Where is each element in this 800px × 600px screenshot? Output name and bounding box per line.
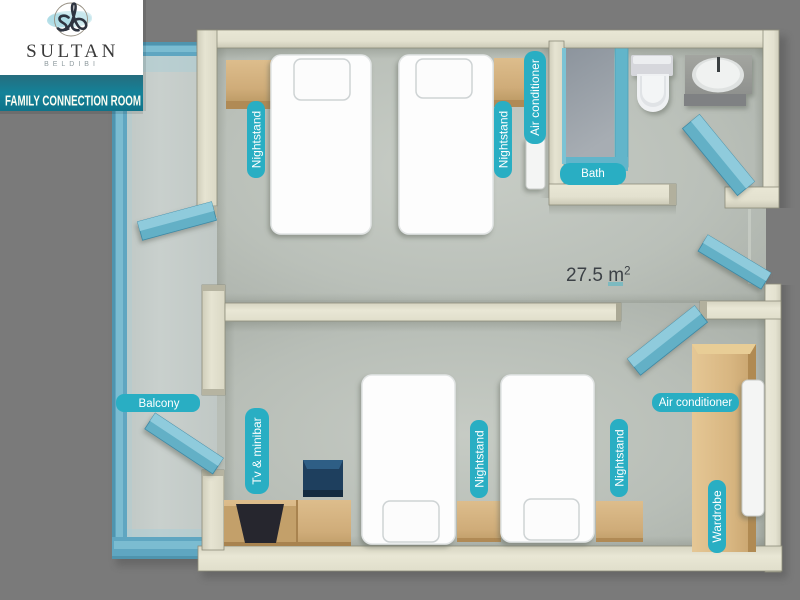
svg-text:SULTAN: SULTAN [26,41,119,62]
svg-text:Nightstand: Nightstand [613,429,627,486]
svg-text:Tv & minibar: Tv & minibar [250,417,264,484]
svg-text:Bath: Bath [581,168,605,180]
svg-text:Air conditioner: Air conditioner [659,397,733,409]
svg-text:BELDIBI: BELDIBI [44,61,99,68]
svg-text:Nightstand: Nightstand [473,430,487,487]
svg-text:Nightstand: Nightstand [497,111,511,168]
svg-text:Balcony: Balcony [139,398,180,410]
svg-text:Wardrobe: Wardrobe [710,490,724,543]
svg-text:Air conditioner: Air conditioner [528,59,542,136]
svg-text:Nightstand: Nightstand [250,111,264,168]
svg-text:FAMILY CONNECTION ROOM: FAMILY CONNECTION ROOM [5,93,141,110]
